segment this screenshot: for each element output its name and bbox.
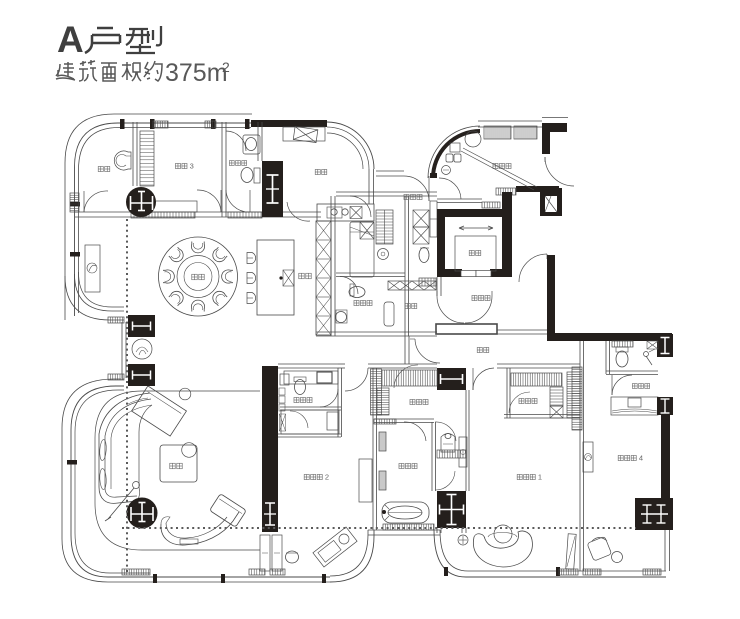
svg-text:2: 2 (325, 473, 329, 482)
svg-text:375m: 375m (165, 59, 228, 87)
svg-text:A: A (57, 19, 84, 60)
svg-text:2: 2 (222, 59, 230, 75)
svg-text:3: 3 (190, 162, 194, 171)
svg-text:1: 1 (538, 473, 542, 482)
svg-text:4: 4 (639, 454, 643, 463)
